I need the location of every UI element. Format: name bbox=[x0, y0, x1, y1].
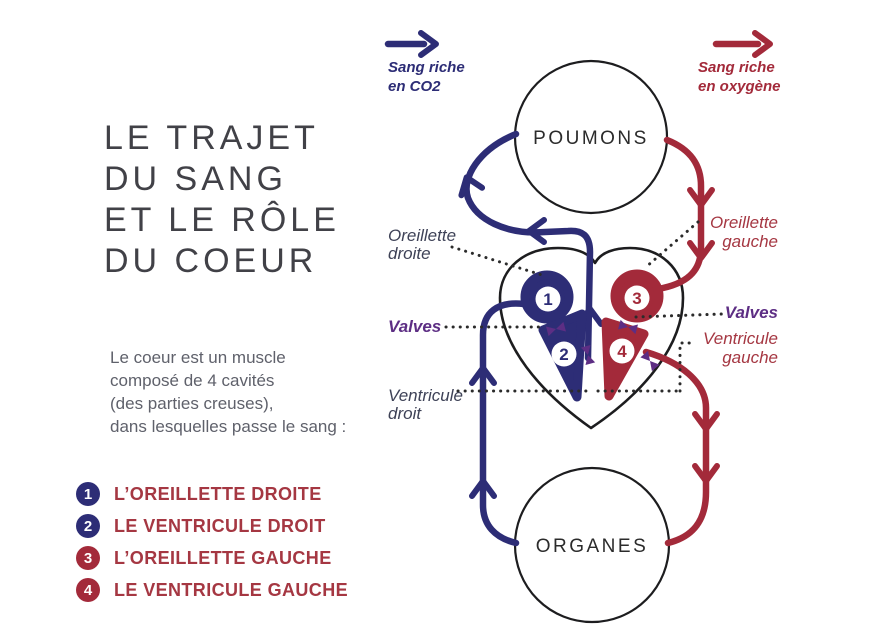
svg-text:Oreillette: Oreillette bbox=[710, 213, 778, 232]
legend-co2-label: en CO2 bbox=[388, 78, 441, 95]
chamber-number-right-atrium: 1 bbox=[536, 287, 561, 312]
lungs-label: POUMONS bbox=[533, 128, 649, 149]
label-left-atrium: Oreillette gauche bbox=[710, 213, 778, 251]
label-left-ventricle: Ventricule gauche bbox=[703, 329, 778, 367]
chamber-number: 4 bbox=[617, 342, 627, 361]
label-valves-right: Valves bbox=[725, 303, 778, 322]
infographic-heart-blood-path: LE TRAJET DU SANG ET LE RÔLE DU COEUR Le… bbox=[0, 0, 873, 640]
svg-text:gauche: gauche bbox=[722, 348, 778, 367]
chamber-number-left-atrium: 3 bbox=[625, 286, 650, 311]
legend-co2: Sang riche en CO2 bbox=[388, 33, 465, 95]
legend-co2-label: Sang riche bbox=[388, 59, 465, 76]
svg-text:droit: droit bbox=[388, 404, 422, 423]
svg-text:Oreillette: Oreillette bbox=[388, 226, 456, 245]
svg-text:Ventricule: Ventricule bbox=[703, 329, 778, 348]
label-valves-left: Valves bbox=[388, 317, 441, 336]
organs-label: ORGANES bbox=[536, 536, 649, 557]
svg-text:droite: droite bbox=[388, 244, 431, 263]
label-right-atrium: Oreillette droite bbox=[388, 226, 456, 263]
chamber-number-right-ventricle: 2 bbox=[552, 342, 577, 367]
legend-oxygen-label: Sang riche bbox=[698, 59, 775, 76]
legend-oxygen-label: en oxygène bbox=[698, 78, 781, 95]
chamber-number: 3 bbox=[632, 289, 641, 308]
legend-oxygen: Sang riche en oxygène bbox=[698, 33, 781, 95]
label-right-ventricle: Ventricule droit bbox=[388, 386, 463, 423]
svg-text:Ventricule: Ventricule bbox=[388, 386, 463, 405]
chamber-number-left-ventricle: 4 bbox=[610, 339, 635, 364]
chamber-number: 2 bbox=[559, 345, 568, 364]
svg-text:gauche: gauche bbox=[722, 232, 778, 251]
chamber-number: 1 bbox=[543, 290, 552, 309]
circulation-diagram: Sang riche en CO2 Sang riche en oxygène bbox=[0, 0, 873, 640]
